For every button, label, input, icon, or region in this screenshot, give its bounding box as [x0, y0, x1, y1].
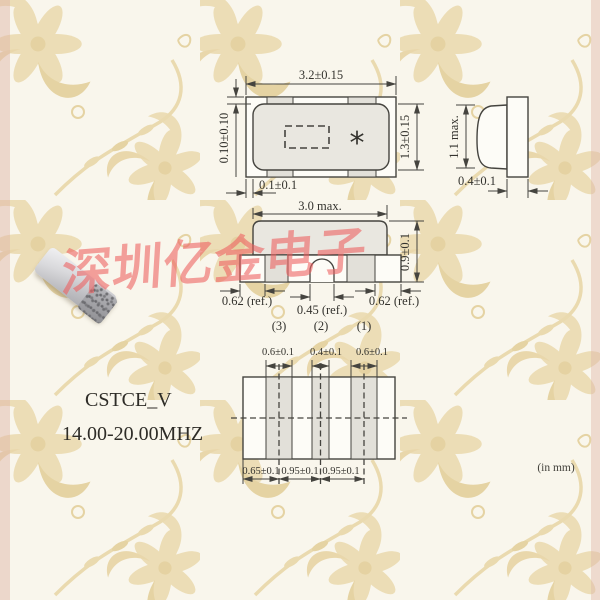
product-series: CSTCE_V: [85, 389, 172, 411]
footprint-pad-width-label-2: 0.4±0.1: [310, 347, 342, 358]
top-dim-width-label: 3.2±0.15: [299, 68, 343, 82]
side-dim-terminal: [488, 179, 548, 198]
top-view-lid: [253, 104, 389, 170]
footprint-pad-width-label-1: 0.6±0.1: [262, 347, 294, 358]
footprint-view: 0.6±0.1 0.4±0.1 0.6±0.1 0.65±0.1 0.95±0.…: [231, 347, 407, 484]
pin-3-label: (3): [272, 319, 287, 333]
side-dim-terminal-label: 0.4±0.1: [458, 174, 496, 188]
side-view: 1.1 max. 0.4±0.1: [447, 97, 548, 198]
pin-1-label: (1): [357, 319, 372, 333]
footprint-pitch-label-2: 0.95±0.1: [281, 466, 318, 477]
footprint-pitch-label-1: 0.65±0.1: [242, 466, 279, 477]
side-dim-height-label: 1.1 max.: [447, 115, 461, 158]
front-dim-width-label: 3.0 max.: [298, 199, 341, 213]
front-dim-center-label: 0.45 (ref.): [297, 303, 347, 317]
top-view: * 3.2±0.15 1.3±0.15 0.10±0: [217, 68, 424, 198]
top-dim-height-label: 1.3±0.15: [398, 115, 412, 159]
footprint-pad-width-dims: [266, 360, 377, 377]
front-dim-height-label: 0.9±0.1: [398, 233, 412, 271]
side-view-terminal: [507, 97, 528, 177]
page: * 3.2±0.15 1.3±0.15 0.10±0: [0, 0, 600, 600]
footprint-pad-width-label-3: 0.6±0.1: [356, 347, 388, 358]
front-dim-left-label: 0.62 (ref.): [222, 294, 272, 308]
front-dim-right-label: 0.62 (ref.): [369, 294, 419, 308]
side-view-body: [477, 105, 507, 169]
polarity-marking: *: [350, 126, 365, 161]
top-dim-end-offset-label: 0.1±0.1: [259, 178, 297, 192]
product-frequency-range: 14.00-20.00MHZ: [62, 423, 203, 445]
top-dim-lid-offset-label: 0.10±0.10: [217, 113, 231, 164]
footprint-pitch-label-3: 0.95±0.1: [322, 466, 359, 477]
pin-2-label: (2): [314, 319, 329, 333]
units-note: (in mm): [537, 462, 575, 474]
